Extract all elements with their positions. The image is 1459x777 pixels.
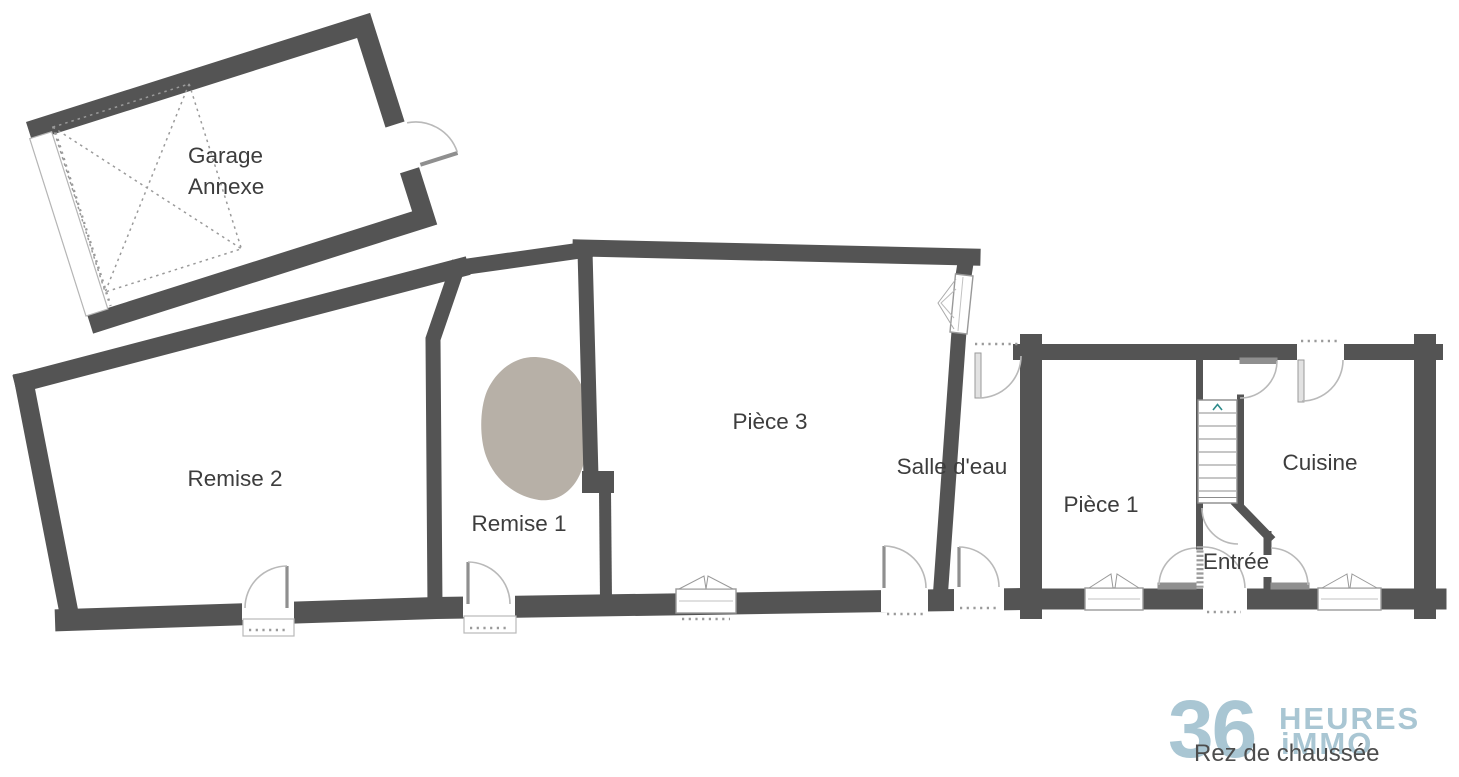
garage-label-line1: Garage (188, 143, 263, 168)
floor-caption: Rez de chaussée (1194, 740, 1379, 767)
piece1-entree-door-arc (1159, 548, 1196, 585)
corridor-top-door-arc (1240, 361, 1277, 398)
garage-side-door-leaf (420, 153, 457, 165)
piece3-door (881, 546, 928, 614)
remise2-label: Remise 2 (187, 466, 282, 491)
garage-label-line2: Annexe (188, 174, 264, 199)
corridor-top-door (1240, 358, 1277, 398)
piece3-top-wall (581, 248, 972, 257)
remise2-door (242, 566, 294, 636)
remise1-blob (481, 357, 587, 500)
cuisine-label: Cuisine (1282, 450, 1357, 475)
remise1-piece3-wall-upper (585, 251, 591, 477)
entree-cuisine-door-leaf (1271, 583, 1309, 589)
piece3-label: Pièce 3 (732, 409, 807, 434)
piece3-door-arc (884, 546, 926, 588)
corridor-top-door-leaf (1240, 358, 1277, 364)
cuisine-top-door-gap (1297, 343, 1344, 361)
front-door-gap (1203, 587, 1247, 610)
entree-cuisine-door (1271, 548, 1309, 589)
piece3-window-sash-right (706, 576, 733, 589)
floor-plan-page: Garage Annexe Remise 2 Remise 1 Pièce 3 … (0, 0, 1459, 777)
piece1-window-sash-left (1089, 574, 1113, 588)
remise2-left-wall (24, 382, 70, 618)
remise1-door-gap (463, 592, 515, 617)
garage-side-door-gap (384, 120, 423, 174)
piece3-side-window (938, 274, 973, 334)
left-building-bottom-wall (66, 599, 1022, 620)
cuisine-window (1318, 574, 1381, 610)
garage-door-opening (30, 132, 108, 316)
piece1-window (1085, 574, 1143, 610)
remise2-remise1-wall (433, 269, 457, 607)
salle-deau-top-door-arc (979, 356, 1021, 398)
piece3-window (676, 576, 736, 619)
piece1-entree-door (1158, 548, 1196, 589)
piece1-window-sash-right (1115, 574, 1139, 588)
remise1-label: Remise 1 (471, 511, 566, 536)
entree-cuisine-door-arc (1271, 548, 1308, 585)
cuisine-top-door (1297, 341, 1344, 402)
salle-deau-bottom-door (954, 547, 1004, 612)
cuisine-window-sash-left (1322, 574, 1349, 588)
piece3-window-sash-left (679, 576, 706, 589)
cuisine-window-sash-right (1350, 574, 1377, 588)
cuisine-top-door-leaf (1298, 360, 1304, 402)
floor-plan-svg: Garage Annexe Remise 2 Remise 1 Pièce 3 … (0, 0, 1459, 777)
stairs-door-arc (1202, 508, 1238, 544)
salle-deau-top-door-leaf (975, 353, 981, 398)
cuisine-top-door-arc (1302, 360, 1343, 401)
remise1-door (463, 562, 516, 633)
salle-deau-bottom-door-arc (959, 547, 999, 587)
piece3-door-gap (881, 586, 928, 612)
staircase (1198, 400, 1237, 503)
remise1-piece3-wall-lower (605, 490, 606, 601)
remise2-door-threshold (243, 619, 294, 636)
salle-deau-label: Salle d'eau (897, 454, 1008, 479)
remise1-door-threshold (464, 616, 516, 633)
entree-label: Entrée (1203, 549, 1269, 574)
remise1-top-wall (457, 250, 584, 268)
piece1-label: Pièce 1 (1063, 492, 1138, 517)
piece1-entree-door-leaf (1158, 583, 1196, 589)
